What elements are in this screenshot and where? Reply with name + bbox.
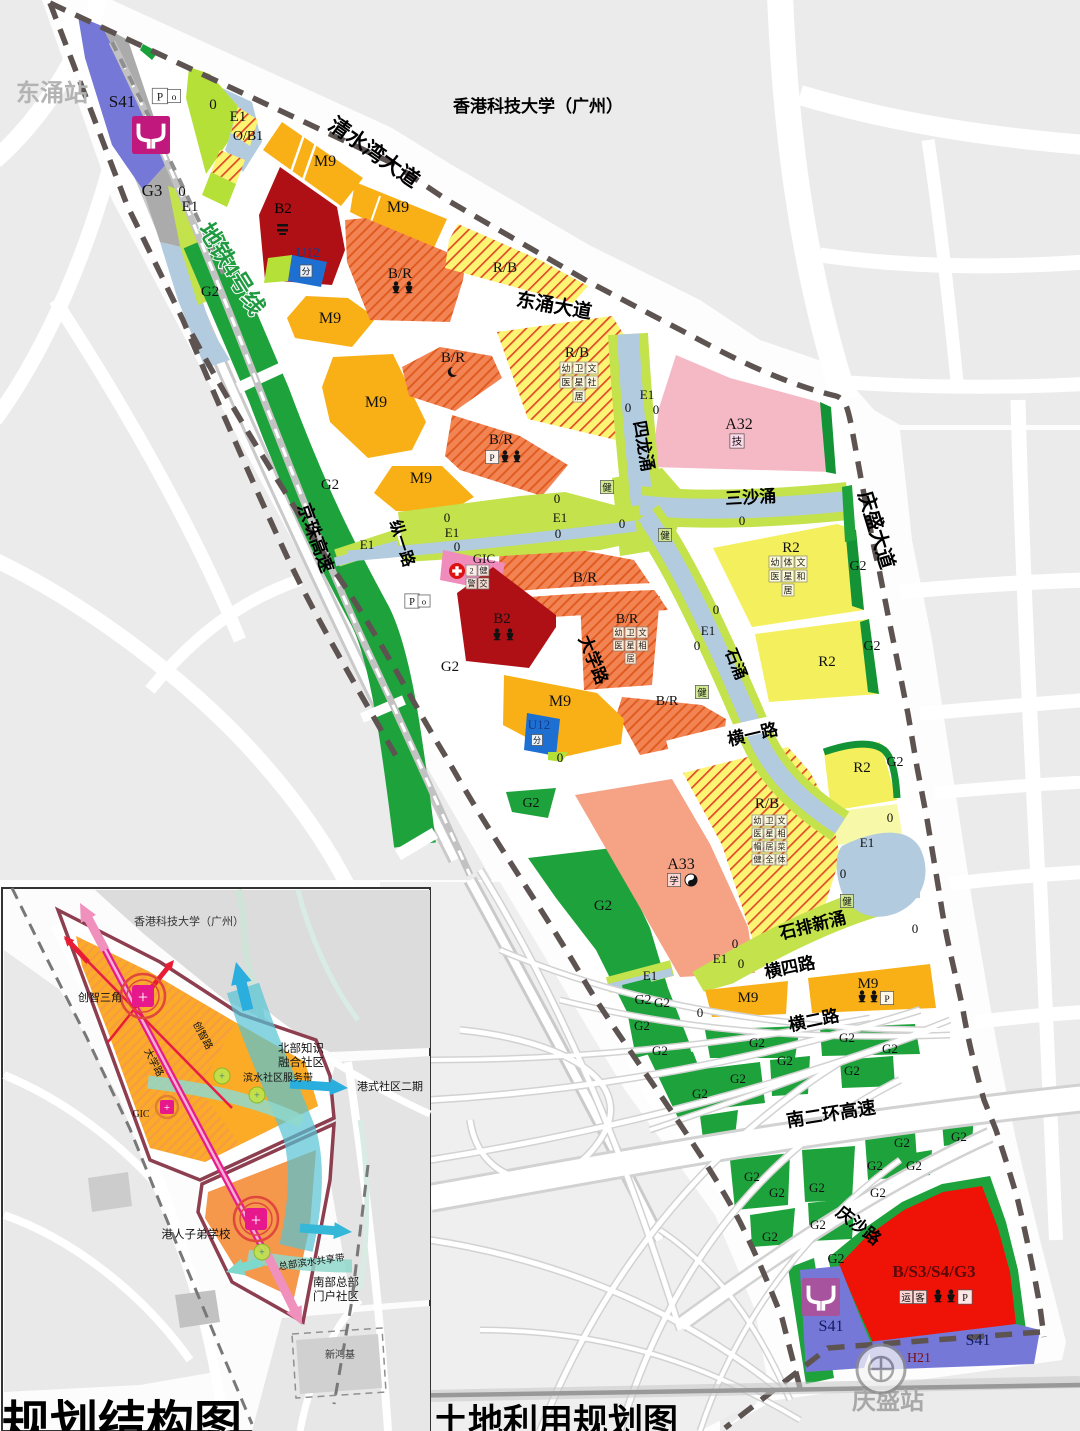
- svg-text:M9: M9: [410, 470, 432, 487]
- svg-text:G2: G2: [730, 1071, 746, 1086]
- svg-text:P: P: [489, 453, 494, 464]
- svg-text:土地利用规划图: 土地利用规划图: [433, 1403, 678, 1431]
- svg-text:G2: G2: [634, 1018, 650, 1033]
- svg-text:0: 0: [653, 402, 660, 417]
- svg-text:三沙涌: 三沙涌: [725, 487, 777, 509]
- svg-text:+: +: [259, 1248, 265, 1259]
- svg-text:G2: G2: [777, 1053, 793, 1068]
- svg-text:G2: G2: [844, 1063, 860, 1078]
- svg-text:卫: 卫: [574, 363, 583, 373]
- svg-text:E1: E1: [553, 510, 567, 525]
- svg-text:G2: G2: [441, 659, 459, 675]
- svg-text:G2: G2: [894, 1135, 910, 1150]
- svg-text:P: P: [884, 994, 889, 1005]
- svg-text:G2: G2: [870, 1185, 886, 1200]
- svg-text:G2: G2: [634, 993, 651, 1008]
- svg-text:B/S3/S4/G3: B/S3/S4/G3: [892, 1262, 975, 1281]
- svg-text:R/B: R/B: [755, 796, 779, 812]
- svg-text:0: 0: [625, 400, 632, 415]
- svg-text:B/R: B/R: [616, 612, 639, 627]
- svg-text:M9: M9: [314, 153, 336, 170]
- svg-text:+: +: [251, 1210, 261, 1230]
- svg-text:+: +: [138, 987, 148, 1007]
- svg-text:医: 医: [561, 377, 570, 387]
- svg-text:星: 星: [765, 830, 773, 839]
- svg-text:G2: G2: [827, 1252, 844, 1267]
- svg-text:G2: G2: [951, 1129, 967, 1144]
- svg-text:E1: E1: [643, 968, 657, 983]
- svg-text:0: 0: [178, 184, 186, 200]
- svg-text:健: 健: [479, 566, 487, 576]
- svg-text:B/R: B/R: [441, 350, 465, 366]
- svg-text:M9: M9: [738, 990, 759, 1006]
- svg-text:0: 0: [619, 516, 626, 531]
- svg-text:G2: G2: [809, 1180, 825, 1195]
- svg-text:R/B: R/B: [493, 260, 517, 276]
- svg-text:和: 和: [796, 571, 805, 581]
- svg-text:G2: G2: [867, 1158, 883, 1173]
- svg-text:G2: G2: [762, 1229, 778, 1244]
- svg-text:文: 文: [777, 816, 785, 826]
- svg-text:M9: M9: [387, 199, 409, 216]
- svg-text:规划结构图: 规划结构图: [2, 1398, 242, 1431]
- svg-text:G2: G2: [849, 559, 866, 574]
- svg-text:A33: A33: [667, 856, 695, 873]
- svg-text:交: 交: [479, 579, 487, 589]
- svg-text:医: 医: [614, 642, 622, 651]
- svg-text:P: P: [962, 1293, 968, 1304]
- svg-text:0: 0: [738, 956, 745, 971]
- svg-text:星: 星: [783, 571, 792, 581]
- svg-text:B2: B2: [493, 611, 511, 627]
- svg-text:东涌站: 东涌站: [16, 79, 88, 107]
- svg-text:分: 分: [302, 267, 311, 277]
- svg-text:G2: G2: [654, 995, 670, 1010]
- svg-text:0: 0: [454, 539, 461, 554]
- svg-text:创智三角: 创智三角: [78, 990, 122, 1004]
- svg-text:相: 相: [777, 829, 785, 839]
- svg-text:B/R: B/R: [656, 694, 679, 709]
- svg-text:U12: U12: [296, 246, 320, 261]
- svg-text:学: 学: [669, 875, 679, 887]
- svg-text:幼: 幼: [770, 556, 779, 567]
- svg-text:0: 0: [557, 750, 564, 765]
- svg-text:体: 体: [783, 556, 792, 567]
- svg-text:G2: G2: [321, 477, 339, 493]
- svg-text:相: 相: [638, 641, 646, 651]
- svg-text:滨水社区服务带: 滨水社区服务带: [243, 1071, 313, 1084]
- svg-text:0: 0: [694, 638, 701, 653]
- svg-text:全: 全: [765, 855, 774, 865]
- svg-text:健: 健: [660, 530, 670, 542]
- svg-text:0: 0: [713, 602, 720, 617]
- svg-text:G2: G2: [839, 1030, 855, 1045]
- svg-text:B/R: B/R: [388, 266, 412, 282]
- svg-text:北部知识: 北部知识: [278, 1041, 324, 1055]
- svg-text:健: 健: [697, 687, 707, 699]
- svg-text:香港科技大学（广州）: 香港科技大学（广州）: [134, 914, 244, 928]
- svg-text:居: 居: [783, 585, 792, 595]
- svg-text:E1: E1: [182, 199, 199, 215]
- svg-text:GIC: GIC: [132, 1109, 150, 1120]
- svg-text:E1: E1: [701, 623, 715, 638]
- svg-text:S41: S41: [966, 1332, 991, 1349]
- svg-text:医: 医: [753, 830, 761, 839]
- svg-text:0: 0: [555, 526, 562, 541]
- svg-text:居: 居: [765, 843, 773, 852]
- svg-text:G2: G2: [863, 639, 880, 654]
- svg-text:S41: S41: [819, 1318, 844, 1335]
- svg-text:GIC: GIC: [473, 551, 495, 566]
- svg-text:S41: S41: [109, 92, 135, 111]
- svg-text:运: 运: [901, 1293, 911, 1304]
- svg-text:警: 警: [467, 579, 475, 589]
- svg-text:M9: M9: [319, 310, 341, 327]
- svg-text:H21: H21: [907, 1351, 931, 1366]
- svg-text:+: +: [164, 1102, 170, 1114]
- svg-text:文: 文: [796, 556, 805, 567]
- svg-text:健: 健: [602, 482, 612, 494]
- svg-text:R2: R2: [818, 654, 836, 670]
- svg-text:G2: G2: [769, 1185, 785, 1200]
- svg-text:G2: G2: [882, 1041, 898, 1056]
- svg-text:G2: G2: [594, 898, 612, 914]
- svg-text:E1: E1: [360, 537, 374, 552]
- svg-text:o: o: [422, 597, 427, 607]
- svg-text:居: 居: [574, 391, 583, 401]
- svg-text:技: 技: [732, 435, 743, 448]
- svg-text:星: 星: [574, 377, 583, 387]
- svg-text:G2: G2: [201, 284, 219, 300]
- svg-text:0: 0: [209, 97, 217, 113]
- svg-text:幼: 幼: [614, 628, 622, 638]
- svg-text:M9: M9: [549, 693, 571, 710]
- svg-text:分: 分: [533, 736, 541, 745]
- svg-text:0: 0: [912, 921, 919, 936]
- svg-text:G2: G2: [749, 1035, 765, 1050]
- svg-text:卫: 卫: [626, 629, 634, 638]
- svg-text:G2: G2: [886, 755, 903, 770]
- svg-text:文: 文: [638, 628, 646, 638]
- svg-text:菜: 菜: [777, 842, 785, 852]
- svg-text:E1: E1: [860, 835, 874, 850]
- svg-text:卫: 卫: [765, 817, 773, 826]
- svg-text:O/B1: O/B1: [233, 129, 263, 144]
- svg-text:0: 0: [554, 491, 561, 506]
- svg-text:M9: M9: [365, 394, 387, 411]
- svg-text:E1: E1: [230, 109, 247, 125]
- svg-text:医: 医: [770, 571, 779, 581]
- svg-text:居: 居: [626, 655, 634, 664]
- svg-text:文: 文: [587, 362, 596, 373]
- svg-text:E1: E1: [713, 951, 727, 966]
- svg-text:体: 体: [777, 855, 786, 865]
- svg-text:0: 0: [739, 513, 746, 528]
- svg-text:R2: R2: [853, 760, 871, 776]
- svg-text:G2: G2: [692, 1086, 708, 1101]
- svg-text:0: 0: [840, 866, 847, 881]
- svg-text:2: 2: [469, 567, 473, 576]
- svg-text:客: 客: [915, 1292, 925, 1304]
- svg-text:G2: G2: [906, 1158, 922, 1173]
- svg-text:港式社区二期: 港式社区二期: [357, 1079, 423, 1093]
- svg-text:0: 0: [732, 936, 739, 951]
- svg-text:健: 健: [842, 896, 852, 908]
- svg-text:G2: G2: [744, 1169, 760, 1184]
- svg-text:帽: 帽: [753, 842, 761, 852]
- svg-text:B2: B2: [274, 201, 292, 217]
- svg-text:+: +: [219, 1072, 225, 1083]
- svg-text:G2: G2: [810, 1217, 826, 1232]
- svg-text:幼: 幼: [561, 362, 570, 373]
- svg-text:新鸿基: 新鸿基: [325, 1348, 355, 1361]
- svg-text:0: 0: [887, 810, 894, 825]
- svg-text:A32: A32: [725, 416, 753, 433]
- svg-text:幼: 幼: [753, 816, 761, 826]
- svg-text:B/R: B/R: [573, 570, 597, 586]
- svg-text:E1: E1: [445, 525, 459, 540]
- svg-text:U12: U12: [528, 717, 550, 732]
- svg-text:社: 社: [587, 376, 596, 387]
- svg-text:G3: G3: [142, 181, 163, 200]
- svg-text:G2: G2: [652, 1043, 668, 1058]
- svg-text:0: 0: [444, 510, 451, 525]
- svg-text:香港科技大学（广州）: 香港科技大学（广州）: [453, 96, 623, 116]
- svg-text:+: +: [254, 1091, 260, 1102]
- svg-text:M9: M9: [858, 976, 879, 992]
- svg-text:R2: R2: [782, 540, 800, 556]
- svg-text:B/R: B/R: [489, 432, 513, 448]
- svg-text:融合社区: 融合社区: [278, 1055, 324, 1069]
- svg-text:G2: G2: [522, 796, 539, 811]
- svg-text:P: P: [157, 91, 163, 103]
- svg-text:P: P: [409, 597, 415, 608]
- svg-text:0: 0: [697, 1005, 704, 1020]
- svg-text:o: o: [172, 92, 177, 103]
- svg-text:R/B: R/B: [565, 345, 589, 361]
- svg-text:星: 星: [626, 642, 634, 651]
- svg-text:E1: E1: [640, 387, 654, 402]
- svg-text:健: 健: [753, 855, 761, 865]
